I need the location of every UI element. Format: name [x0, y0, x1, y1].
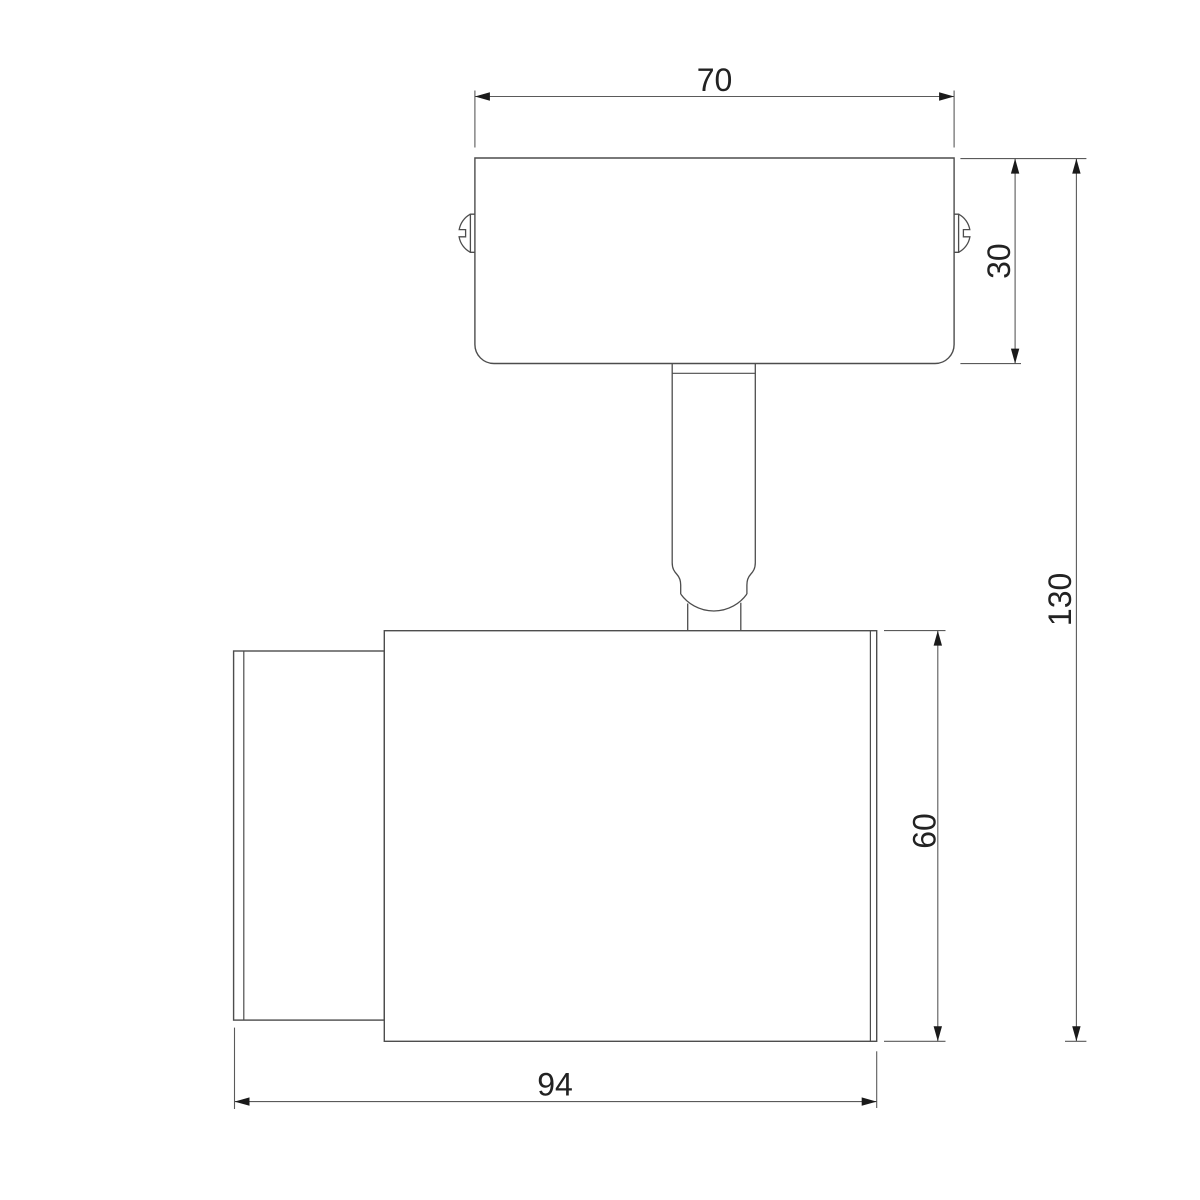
svg-text:94: 94	[537, 1066, 573, 1102]
svg-text:130: 130	[1042, 573, 1078, 626]
svg-text:30: 30	[981, 243, 1017, 279]
svg-text:60: 60	[907, 813, 943, 849]
svg-text:70: 70	[697, 62, 733, 98]
